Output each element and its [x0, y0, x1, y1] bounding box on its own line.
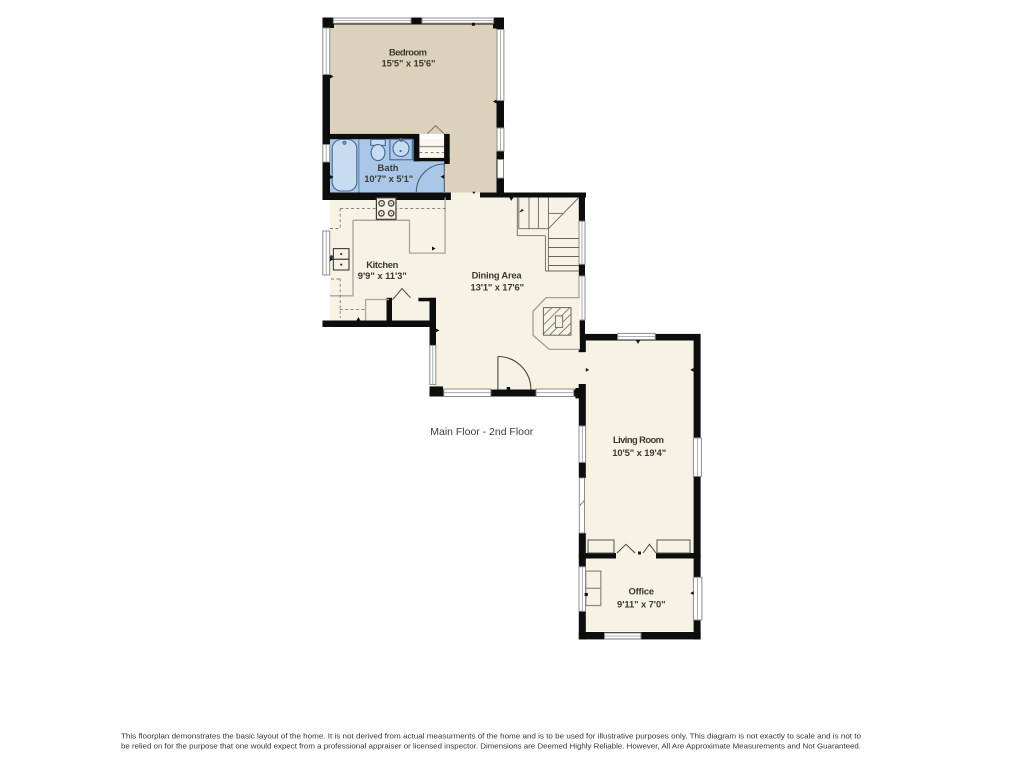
- svg-text:10'7" x 5'1": 10'7" x 5'1": [364, 173, 413, 184]
- svg-text:be relied on for the purpose t: be relied on for the purpose that one wo…: [121, 741, 861, 750]
- svg-text:Dining Area: Dining Area: [472, 270, 523, 281]
- svg-text:Living Room: Living Room: [613, 434, 664, 445]
- svg-text:9'11" x 7'0": 9'11" x 7'0": [617, 599, 666, 610]
- svg-text:Office: Office: [629, 586, 655, 597]
- svg-text:Kitchen: Kitchen: [366, 259, 398, 270]
- svg-text:This floorplan demonstrates th: This floorplan demonstrates the basic la…: [121, 732, 861, 741]
- svg-text:Bath: Bath: [378, 162, 399, 173]
- svg-text:13'1" x 17'6": 13'1" x 17'6": [471, 282, 525, 293]
- svg-text:Main Floor - 2nd Floor: Main Floor - 2nd Floor: [430, 427, 534, 438]
- svg-text:10'5" x 19'4": 10'5" x 19'4": [612, 447, 666, 458]
- svg-text:9'9" x 11'3": 9'9" x 11'3": [358, 270, 407, 281]
- svg-text:Bedroom: Bedroom: [389, 46, 427, 57]
- svg-text:15'5" x 15'6": 15'5" x 15'6": [382, 58, 436, 69]
